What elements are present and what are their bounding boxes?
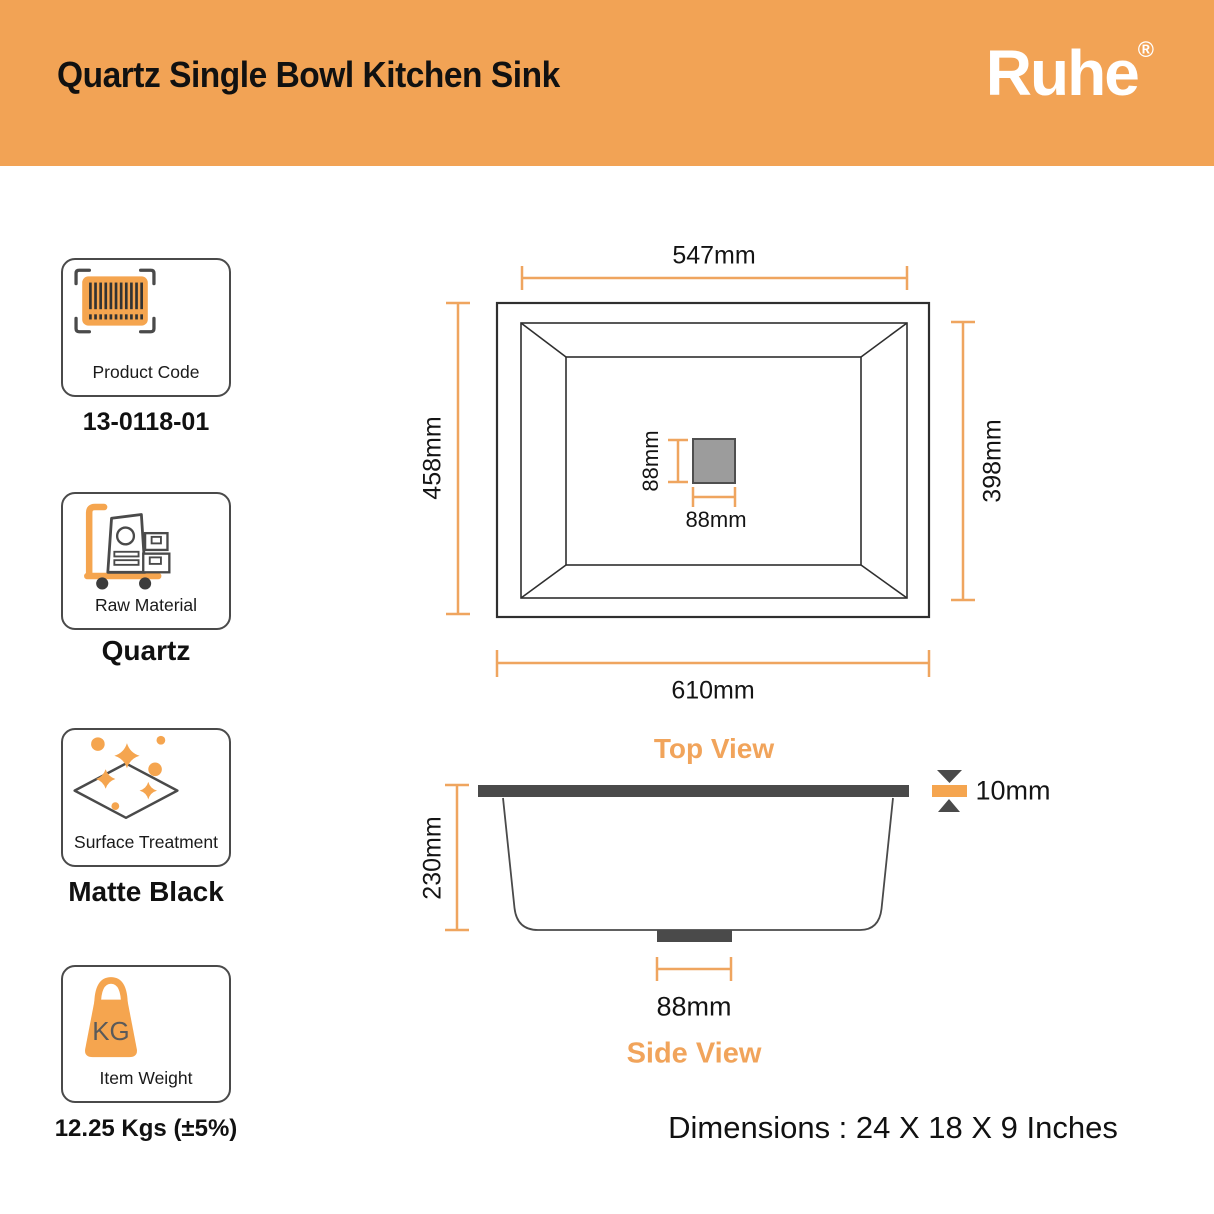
dim-label-458: 458mm <box>419 416 448 499</box>
dim-drain-height <box>668 440 688 482</box>
dim-label-610: 610mm <box>671 677 754 706</box>
top-view-label: Top View <box>654 733 774 765</box>
dim-458 <box>446 303 470 614</box>
dim-230 <box>445 785 469 930</box>
top-view-drawing <box>446 266 975 677</box>
product-dimension-sheet: Quartz Single Bowl Kitchen Sink Ruhe® <box>0 0 1214 1214</box>
bowl-profile <box>503 798 893 930</box>
dim-398 <box>951 322 975 600</box>
flange-bar <box>478 785 909 797</box>
dim-label-230: 230mm <box>419 816 448 899</box>
side-view-label: Side View <box>627 1038 762 1071</box>
drain-stub <box>657 930 732 942</box>
drain-square <box>693 439 735 483</box>
dim-label-88-side: 88mm <box>656 992 731 1023</box>
side-view-drawing <box>445 770 967 981</box>
overall-dimensions-text: Dimensions : 24 X 18 X 9 Inches <box>668 1110 1118 1146</box>
dim-label-drain-height: 88mm <box>638 430 664 491</box>
dim-610 <box>497 650 929 677</box>
dim-label-398: 398mm <box>979 419 1008 502</box>
dim-88-side <box>657 957 731 981</box>
technical-drawing <box>0 0 1214 1214</box>
dim-label-547: 547mm <box>672 242 755 271</box>
dim-drain-width <box>693 487 735 507</box>
dim-10-callout <box>932 770 967 812</box>
dim-label-10: 10mm <box>975 776 1050 807</box>
dim-label-drain-width: 88mm <box>685 507 746 533</box>
